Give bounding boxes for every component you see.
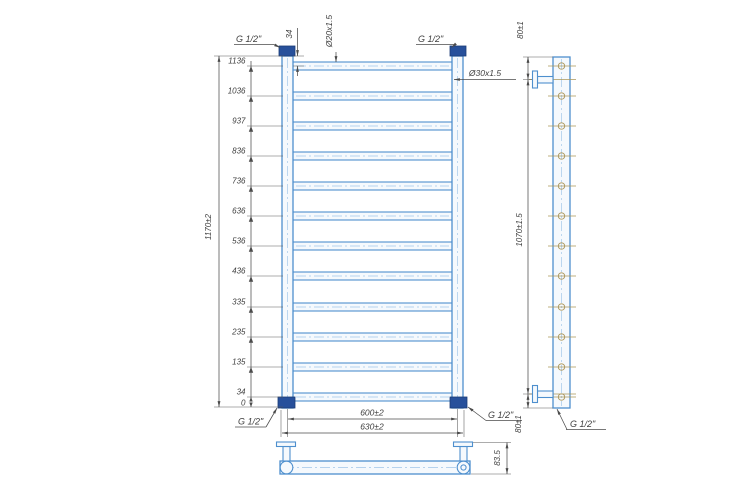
height-dim-label: 235 [231,328,246,337]
height-dim-label: 836 [232,147,246,156]
overall-height-dim: 1170±2 [204,213,213,240]
top-offset-dim: 34 [285,29,294,38]
height-dim-label: 636 [232,207,246,216]
rung-pipe-spec-label: Ø20x1.5 [324,15,334,48]
height-dim-label: 536 [232,237,246,246]
thread-label-side: G 1/2" [570,419,596,429]
fitting-top-right [450,46,466,56]
collector-pipe-spec-label: Ø30x1.5 [468,68,501,78]
thread-label-top-right: G 1/2" [418,34,444,44]
tube-end-right [457,461,470,474]
height-dim-label: 34 [237,388,246,397]
tube-end-left [280,461,293,474]
connection-spacing-dim: 600±2 [360,408,384,418]
fitting-bottom-right [450,397,467,408]
fitting-bottom-left [278,397,295,408]
fitting-top-left [279,46,295,56]
overall-width-dim: 630±2 [360,422,384,432]
thread-label-bottom-left: G 1/2" [238,417,264,427]
height-dim-label: 736 [232,177,246,186]
height-dim-label: 0 [241,399,246,408]
height-dim-label: 937 [232,117,246,126]
height-dim-label: 335 [232,298,246,307]
bracket-depth-dim: 83.5 [493,450,502,466]
height-dim-label: 135 [232,358,246,367]
thread-label-bottom-right: G 1/2" [488,410,514,420]
height-dim-label: 1136 [228,57,246,66]
height-dim-label: 1036 [228,87,246,96]
top-bracket-offset-dim: 80±1 [516,21,525,39]
bottom-bracket-offset-dim: 80±1 [514,415,523,433]
thread-label-top-left: G 1/2" [236,34,262,44]
bracket-spacing-dim: 1070±1.5 [515,213,524,247]
height-dim-label: 436 [232,267,246,276]
technical-drawing: 1136 1036 937 836 736 636 536 436 335 23… [0,0,750,500]
